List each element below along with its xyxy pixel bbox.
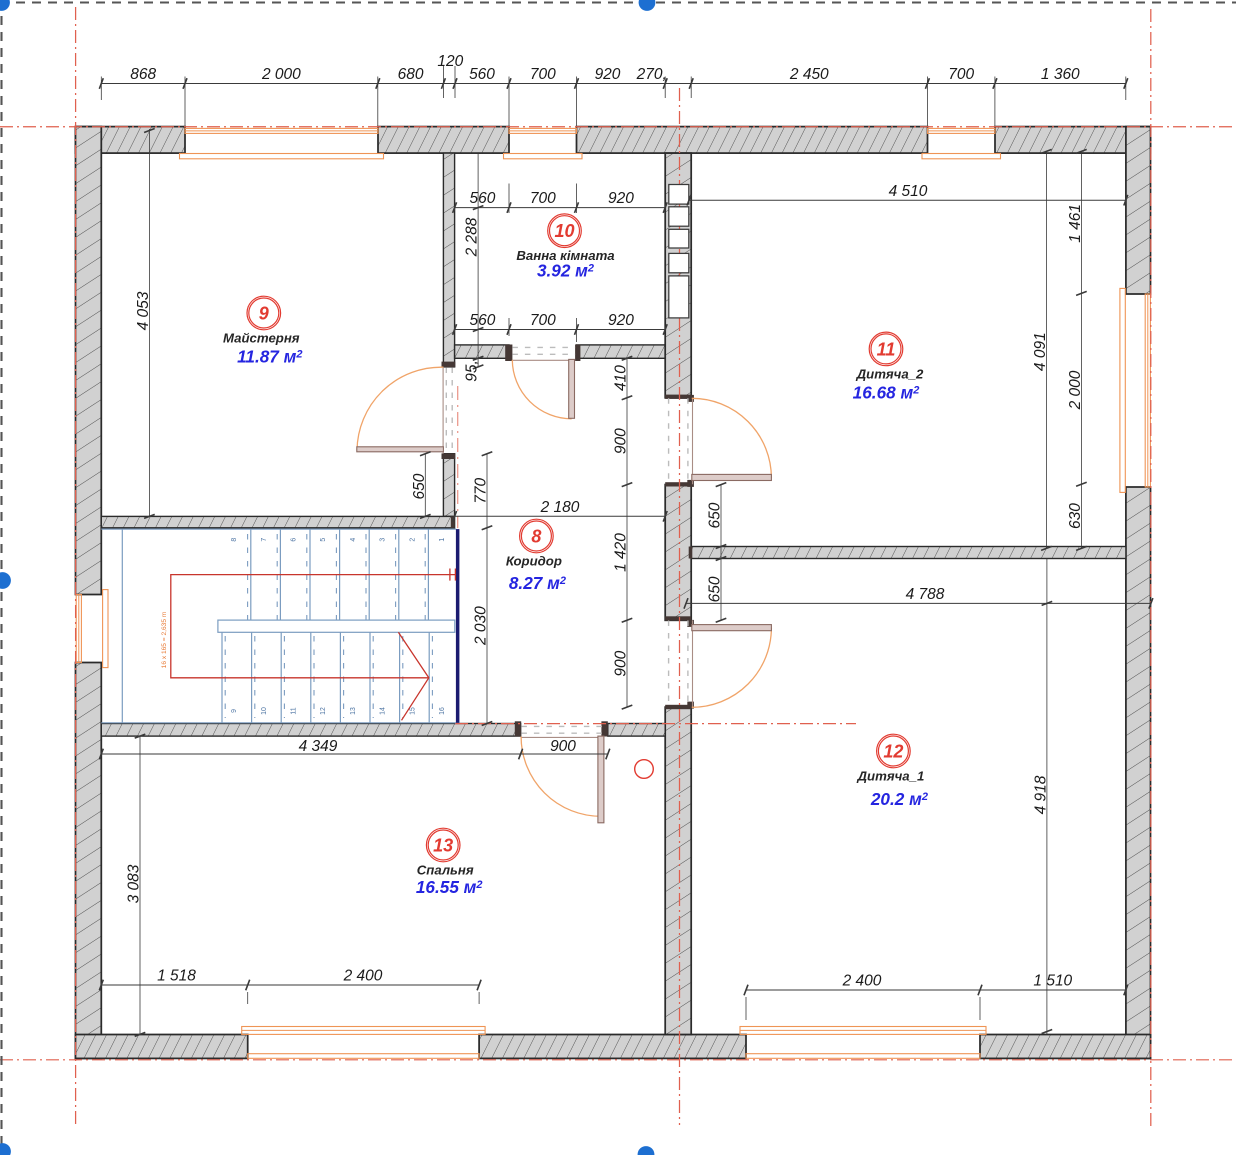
svg-text:868: 868 [130, 66, 156, 83]
svg-text:7: 7 [261, 538, 268, 542]
svg-text:2 030: 2 030 [473, 606, 490, 646]
svg-text:4 788: 4 788 [906, 586, 945, 603]
svg-text:560: 560 [469, 66, 495, 83]
svg-text:680: 680 [398, 66, 424, 83]
svg-text:11: 11 [877, 339, 896, 359]
svg-text:920: 920 [595, 66, 621, 83]
svg-text:1 420: 1 420 [613, 533, 630, 572]
svg-text:1 510: 1 510 [1033, 973, 1072, 990]
svg-text:Спальня: Спальня [417, 863, 474, 878]
svg-text:15: 15 [409, 707, 416, 715]
svg-text:11: 11 [291, 707, 298, 714]
svg-text:13: 13 [433, 836, 453, 856]
svg-text:Коридор: Коридор [506, 554, 562, 569]
svg-text:13: 13 [350, 707, 357, 715]
svg-text:4 510: 4 510 [889, 183, 928, 200]
svg-text:630: 630 [1067, 503, 1084, 529]
svg-text:Дитяча_1: Дитяча_1 [857, 769, 925, 784]
svg-text:2 180: 2 180 [540, 499, 580, 516]
svg-text:6: 6 [291, 538, 298, 542]
svg-text:4 053: 4 053 [135, 291, 152, 330]
svg-text:1 518: 1 518 [157, 968, 196, 985]
svg-text:8: 8 [531, 527, 541, 547]
svg-text:4 349: 4 349 [299, 738, 338, 755]
svg-text:12: 12 [883, 742, 903, 762]
svg-text:700: 700 [948, 66, 974, 83]
svg-text:16 x 165 = 2,635 m: 16 x 165 = 2,635 m [161, 611, 168, 668]
svg-text:12: 12 [320, 707, 327, 715]
svg-text:3: 3 [380, 538, 387, 542]
svg-text:560: 560 [469, 312, 495, 329]
svg-text:14: 14 [380, 707, 387, 715]
svg-text:2: 2 [409, 538, 416, 542]
svg-text:900: 900 [613, 428, 630, 454]
svg-text:770: 770 [473, 477, 490, 503]
svg-text:3.92 м2: 3.92 м2 [537, 261, 594, 281]
svg-text:700: 700 [530, 190, 556, 207]
svg-text:3 083: 3 083 [126, 864, 143, 903]
svg-text:16.68 м2: 16.68 м2 [853, 382, 920, 402]
svg-text:650: 650 [411, 473, 428, 499]
svg-text:Дитяча_2: Дитяча_2 [856, 366, 924, 381]
svg-text:410: 410 [613, 365, 630, 391]
svg-text:4 091: 4 091 [1032, 332, 1049, 371]
svg-text:700: 700 [530, 312, 556, 329]
svg-text:5: 5 [320, 538, 327, 542]
svg-text:900: 900 [613, 650, 630, 676]
svg-text:1 360: 1 360 [1041, 66, 1080, 83]
svg-text:270,: 270, [636, 66, 667, 83]
svg-text:2 000: 2 000 [1067, 370, 1084, 410]
svg-text:2 400: 2 400 [842, 973, 882, 990]
svg-text:20.2 м2: 20.2 м2 [870, 789, 928, 809]
svg-text:2 400: 2 400 [343, 968, 383, 985]
svg-text:11.87 м2: 11.87 м2 [237, 347, 302, 367]
svg-text:1 461: 1 461 [1067, 204, 1084, 243]
svg-text:16: 16 [439, 707, 446, 715]
svg-text:9: 9 [231, 709, 238, 713]
svg-text:95,: 95, [464, 360, 481, 382]
svg-text:9: 9 [259, 304, 269, 324]
svg-text:560: 560 [469, 190, 495, 207]
svg-text:920: 920 [608, 312, 634, 329]
svg-text:650: 650 [707, 576, 724, 602]
svg-text:8.27 м2: 8.27 м2 [509, 573, 566, 593]
svg-text:Майстерня: Майстерня [223, 331, 300, 346]
svg-text:120: 120 [437, 53, 463, 70]
svg-text:8: 8 [231, 538, 238, 542]
svg-text:4 918: 4 918 [1032, 775, 1049, 814]
svg-text:700: 700 [530, 66, 556, 83]
svg-text:10: 10 [554, 221, 574, 241]
svg-text:900: 900 [550, 738, 576, 755]
svg-text:10: 10 [261, 707, 268, 715]
svg-text:1: 1 [439, 538, 446, 542]
svg-text:2 000: 2 000 [261, 66, 301, 83]
svg-text:4: 4 [350, 538, 357, 542]
svg-text:920: 920 [608, 190, 634, 207]
svg-text:16.55 м2: 16.55 м2 [416, 877, 483, 897]
svg-text:2 288: 2 288 [464, 217, 481, 257]
svg-text:2 450: 2 450 [789, 66, 829, 83]
svg-text:650: 650 [707, 502, 724, 528]
